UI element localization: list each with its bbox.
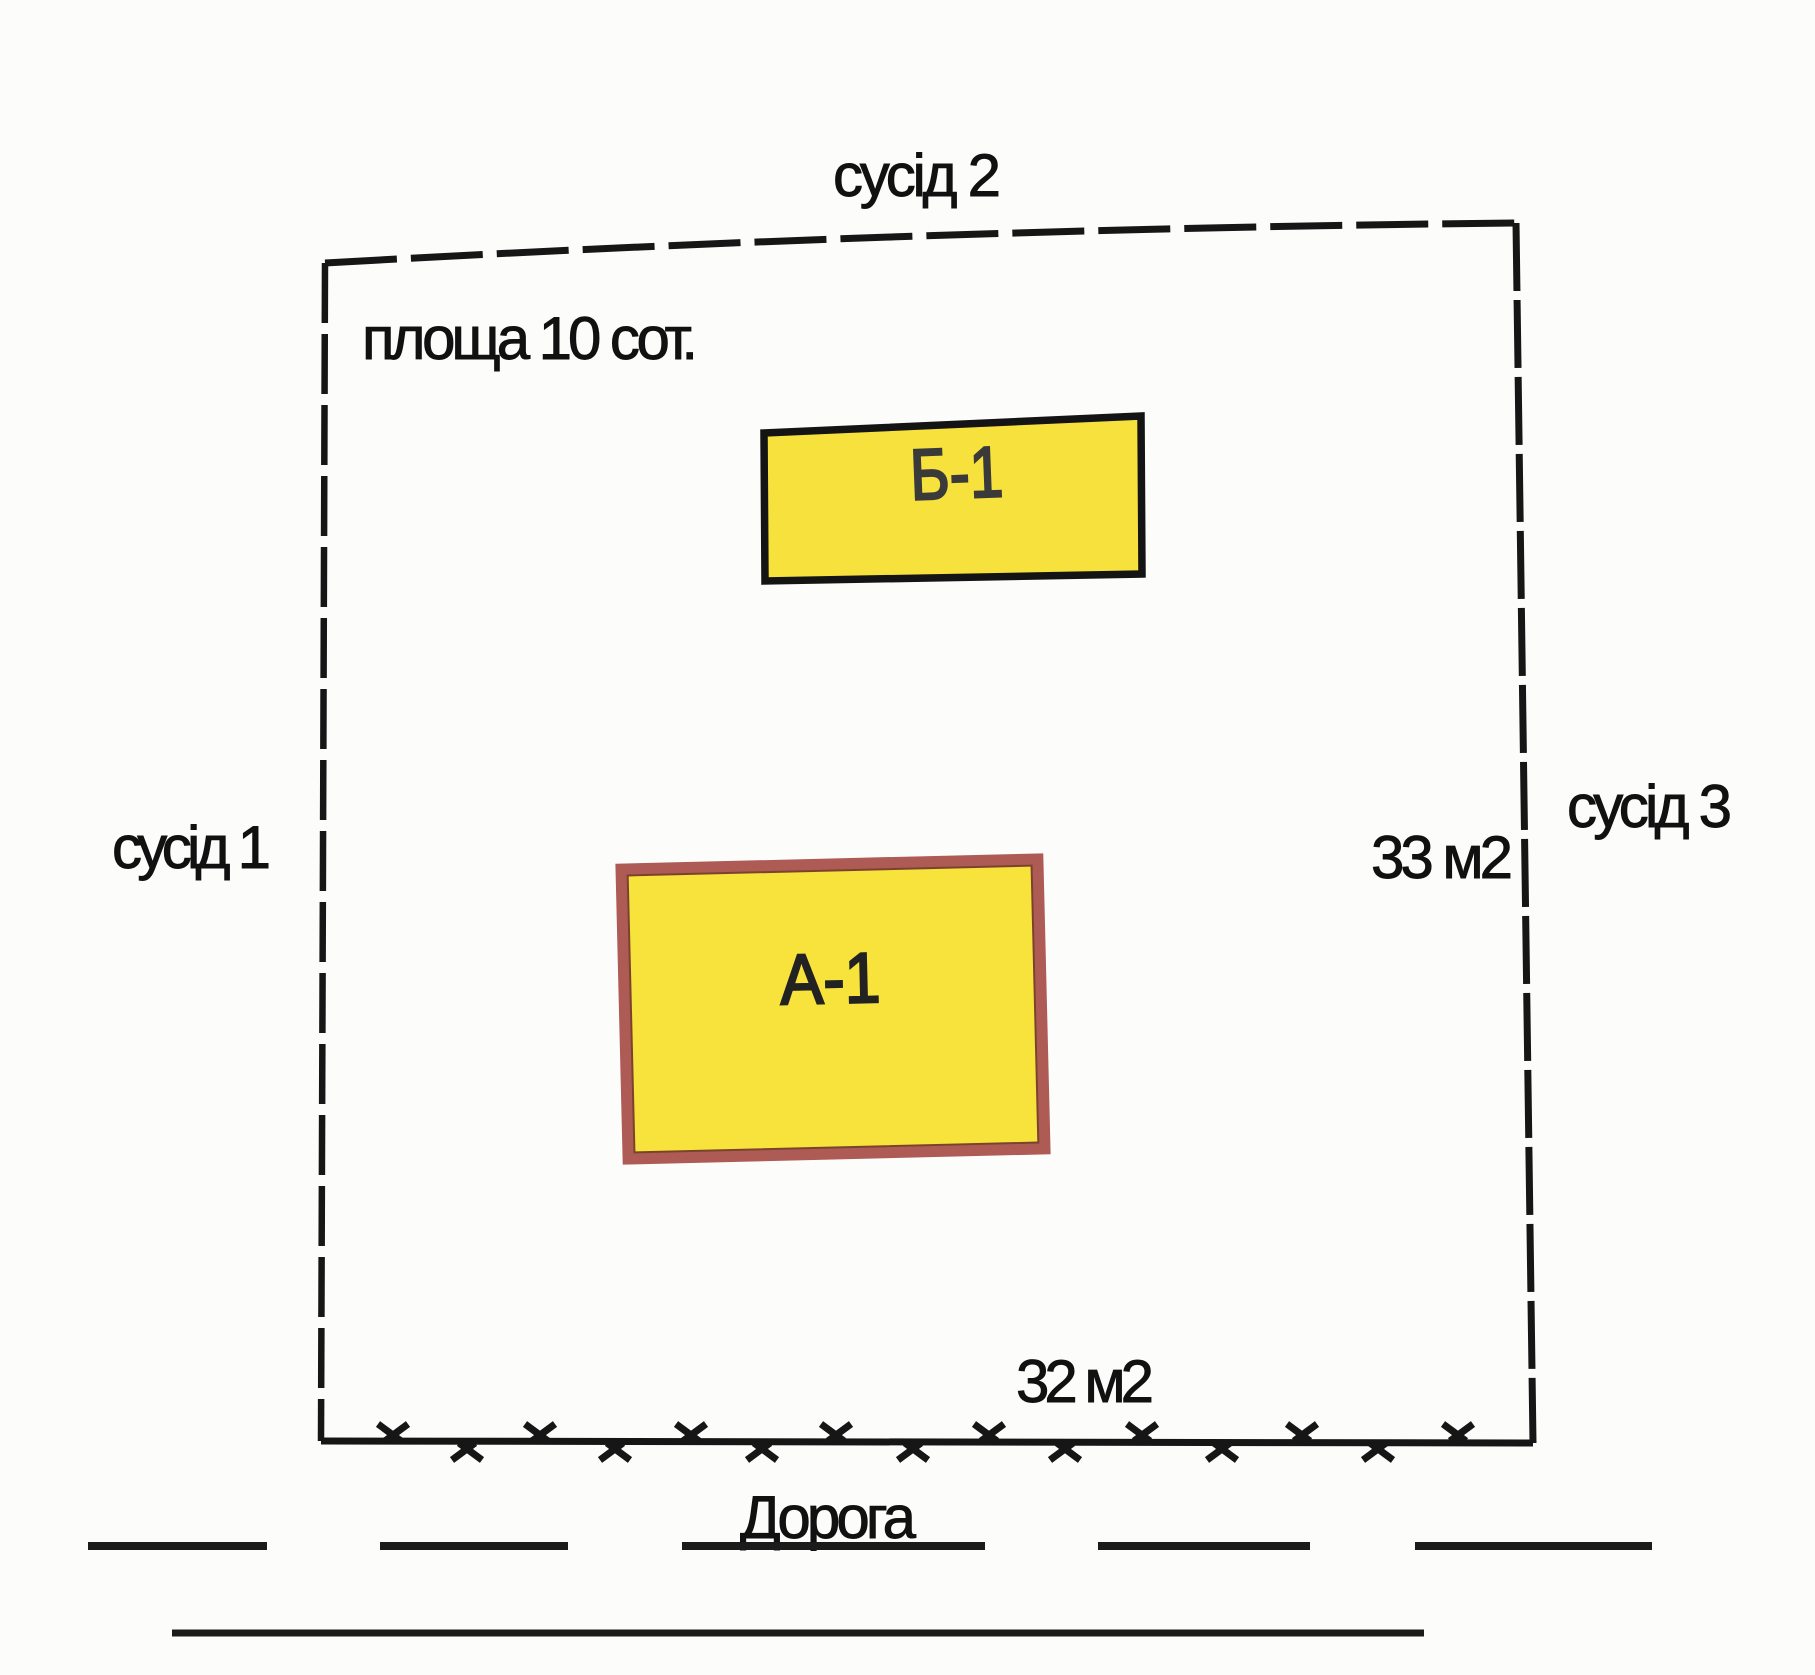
svg-text:сусід 2: сусід 2 — [833, 142, 1001, 209]
svg-text:площа 10 сот.: площа 10 сот. — [362, 305, 698, 372]
svg-text:сусід 1: сусід 1 — [112, 814, 271, 881]
svg-text:Дорога: Дорога — [740, 1484, 917, 1551]
svg-text:33 м2: 33 м2 — [1371, 824, 1513, 891]
svg-text:А-1: А-1 — [779, 939, 881, 1020]
svg-text:сусід 3: сусід 3 — [1567, 773, 1732, 840]
svg-text:Б-1: Б-1 — [909, 432, 1005, 516]
svg-text:32 м2: 32 м2 — [1016, 1348, 1154, 1415]
